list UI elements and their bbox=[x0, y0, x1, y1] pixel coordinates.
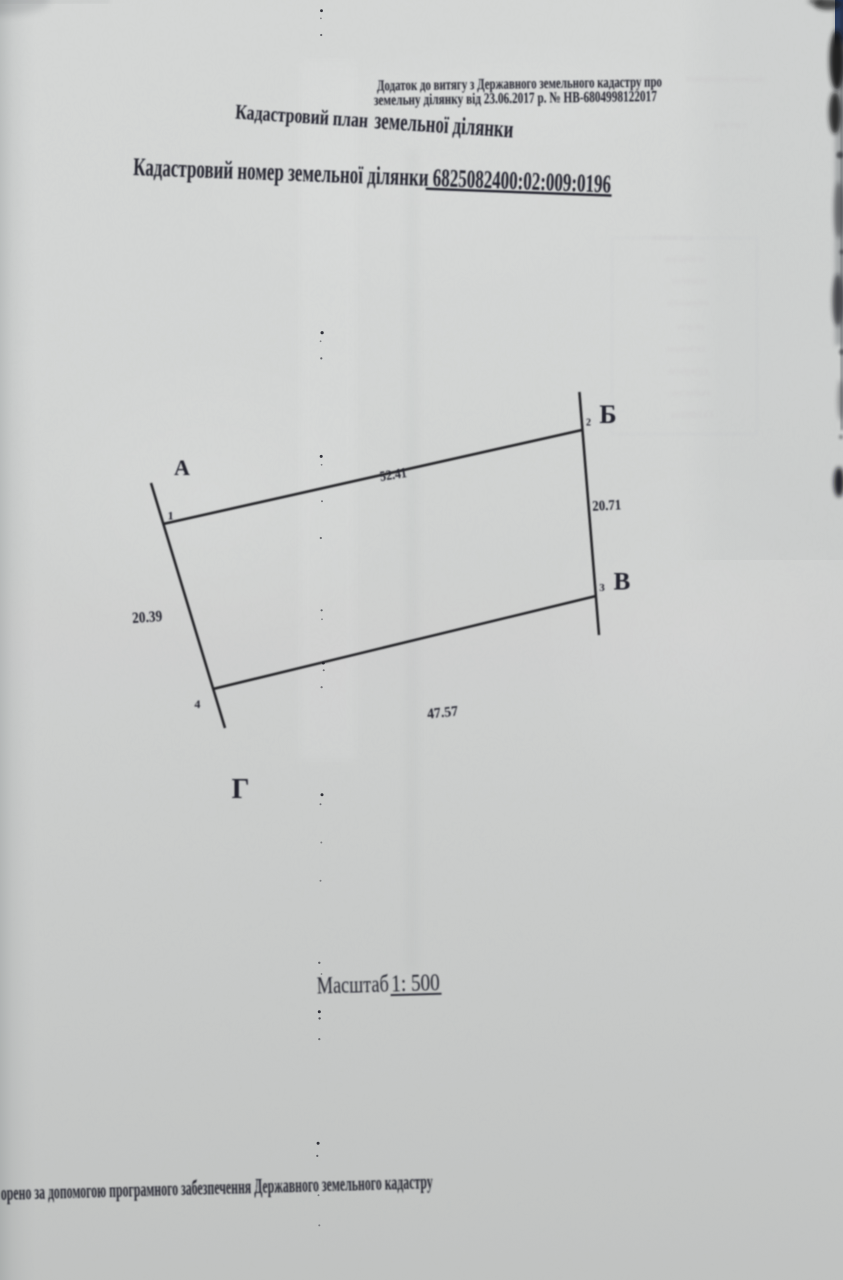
svg-text:ввюя нд: ввюя нд bbox=[652, 231, 693, 243]
svg-text:3: 3 bbox=[599, 582, 605, 594]
svg-text:звгапіач: звгапіач bbox=[669, 387, 710, 399]
svg-text:Г: Г bbox=[232, 774, 250, 805]
svg-text:звшеглт: звшеглт bbox=[666, 343, 707, 355]
svg-text:тснзч: тснзч bbox=[676, 321, 703, 333]
svg-text:1: 1 bbox=[168, 509, 174, 523]
svg-text:твошчна ооныв: твошчна ооныв bbox=[686, 73, 765, 85]
svg-text:20.39: 20.39 bbox=[132, 608, 163, 627]
svg-text:апнрпуд: апнрпуд bbox=[668, 365, 709, 377]
svg-text:В: В bbox=[614, 569, 631, 596]
svg-text:47.57: 47.57 bbox=[426, 703, 459, 722]
svg-text:пншчгв: пншчгв bbox=[665, 253, 704, 265]
svg-text:20.71: 20.71 bbox=[592, 497, 622, 514]
svg-text:4: 4 bbox=[194, 697, 200, 711]
svg-text:Масштаб: Масштаб bbox=[316, 972, 389, 1000]
svg-text:ш890143: ш890143 bbox=[671, 409, 714, 421]
svg-text:Б: Б bbox=[599, 400, 616, 429]
svg-text:нвоаппч: нвоаппч bbox=[667, 297, 709, 309]
svg-text:тостил: тостил bbox=[713, 119, 747, 131]
svg-text:А: А bbox=[174, 455, 190, 480]
svg-text:шчейзс: шчейзс bbox=[672, 275, 708, 287]
svg-text:2: 2 bbox=[586, 417, 591, 428]
